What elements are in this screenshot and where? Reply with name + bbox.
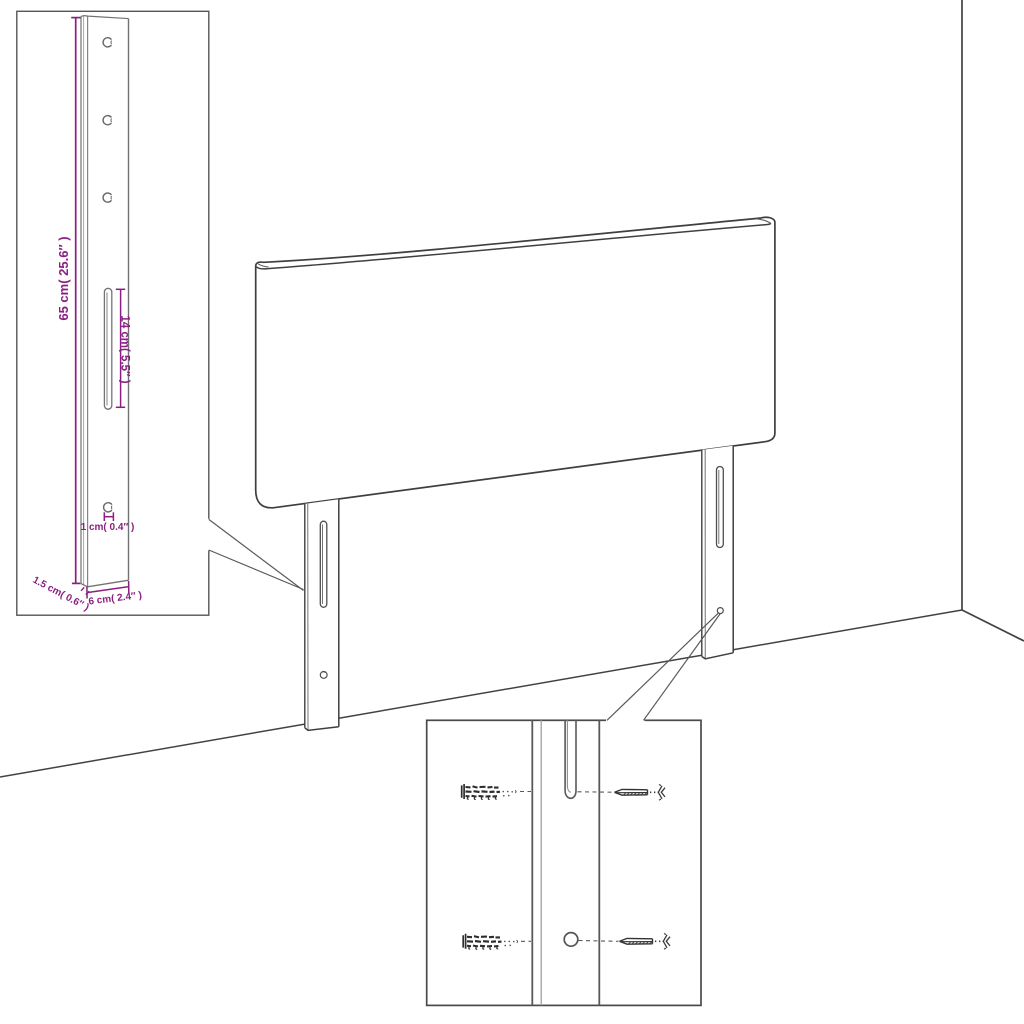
svg-text:14 cm( 5.5″ ): 14 cm( 5.5″ ) [119,315,131,383]
svg-text:65 cm( 25.6″ ): 65 cm( 25.6″ ) [56,236,71,320]
svg-text:1 cm( 0.4″ ): 1 cm( 0.4″ ) [81,522,135,533]
